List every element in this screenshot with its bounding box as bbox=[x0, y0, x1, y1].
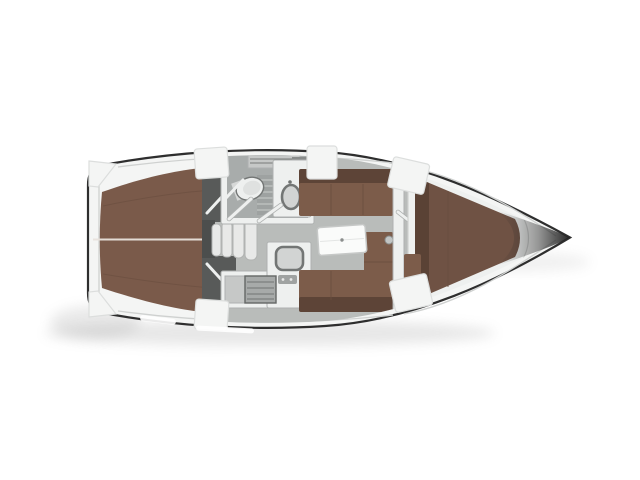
yacht-floorplan-canvas bbox=[0, 0, 640, 480]
washbasin bbox=[282, 185, 300, 209]
yacht-floorplan-figure bbox=[0, 0, 640, 480]
coaming-block-port-mid bbox=[307, 146, 337, 179]
compression-post bbox=[385, 236, 393, 244]
settee-port-seat bbox=[299, 183, 393, 216]
galley-sink bbox=[276, 247, 303, 270]
stove bbox=[245, 276, 276, 303]
coaming-block-port-aft bbox=[194, 147, 229, 179]
galley-worktop bbox=[225, 276, 245, 303]
saloon-table bbox=[317, 224, 367, 255]
settee-starboard-backrest bbox=[299, 297, 393, 312]
galley-control-panel bbox=[278, 275, 297, 284]
settee-starboard-seat bbox=[299, 270, 393, 301]
faucet bbox=[288, 180, 292, 184]
